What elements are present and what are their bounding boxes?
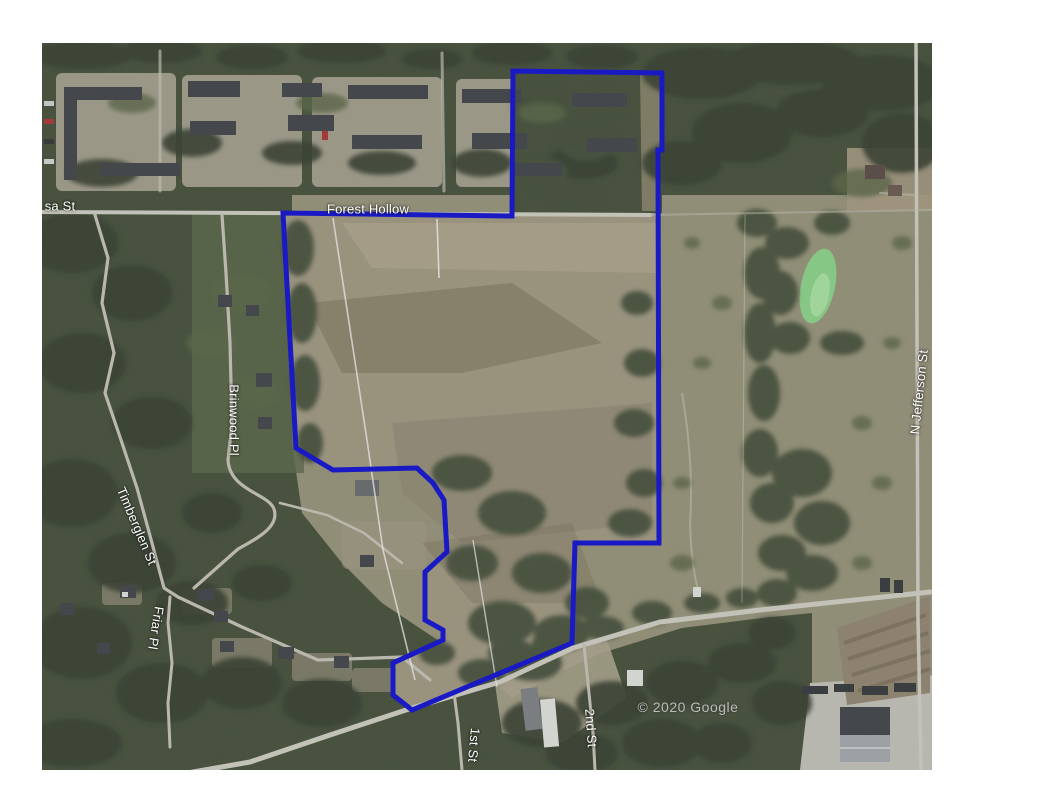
satellite-imagery — [42, 43, 932, 770]
grain-overlay-light — [42, 43, 932, 770]
satellite-map[interactable]: sa St Forest Hollow Brinwood Pl Timbergl… — [42, 43, 932, 770]
